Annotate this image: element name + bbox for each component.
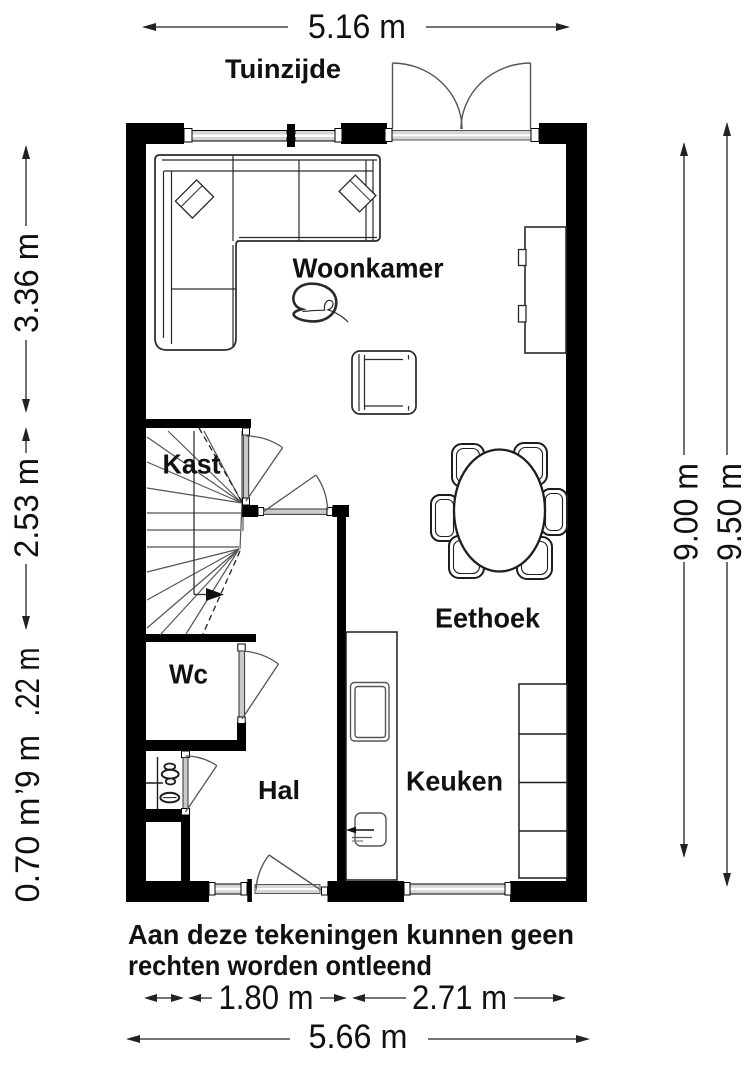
svg-text:’9 m: ’9 m — [9, 735, 47, 795]
svg-text:5.16 m: 5.16 m — [308, 8, 406, 46]
svg-text:rechten worden ontleend: rechten worden ontleend — [128, 950, 432, 981]
svg-text:Eethoek: Eethoek — [435, 603, 540, 634]
svg-text:3.36 m: 3.36 m — [8, 233, 46, 333]
svg-text:0.70 m: 0.70 m — [9, 798, 47, 903]
svg-text:.22 m: .22 m — [9, 648, 47, 717]
svg-text:Hal: Hal — [258, 775, 300, 805]
svg-text:Aan deze tekeningen kunnen gee: Aan deze tekeningen kunnen geen — [128, 919, 574, 950]
svg-text:Keuken: Keuken — [406, 766, 503, 797]
svg-text:Tuinzijde: Tuinzijde — [225, 54, 341, 84]
svg-text:Woonkamer: Woonkamer — [293, 253, 444, 284]
svg-text:5.66 m: 5.66 m — [309, 1018, 408, 1056]
svg-text:Kast: Kast — [163, 449, 221, 480]
svg-text:1.80 m: 1.80 m — [219, 979, 314, 1017]
svg-text:2.53 m: 2.53 m — [8, 458, 46, 558]
svg-text:9.00 m: 9.00 m — [668, 463, 706, 561]
svg-text:9.50 m: 9.50 m — [711, 463, 749, 561]
svg-text:Wc: Wc — [169, 659, 208, 690]
svg-text:2.71 m: 2.71 m — [412, 979, 507, 1017]
